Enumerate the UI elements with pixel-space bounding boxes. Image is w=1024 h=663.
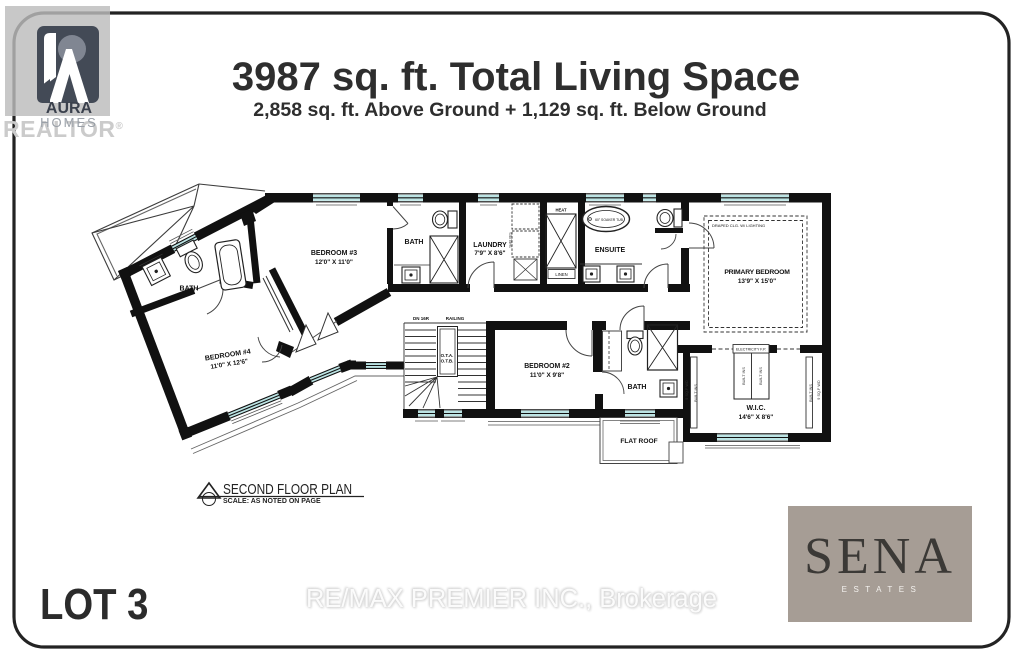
- svg-text:BEDROOM #2: BEDROOM #2: [524, 363, 570, 370]
- svg-text:14'6" X 8'6": 14'6" X 8'6": [739, 414, 774, 421]
- svg-text:FLAT ROOF: FLAT ROOF: [620, 438, 657, 445]
- svg-text:SHELVES: SHELVES: [509, 232, 513, 248]
- svg-text:O.T.B.: O.T.B.: [441, 359, 454, 364]
- svg-text:W.I.C.: W.I.C.: [746, 405, 765, 412]
- svg-text:PRIMARY BEDROOM: PRIMARY BEDROOM: [724, 269, 790, 276]
- svg-text:9 SQ.F WD: 9 SQ.F WD: [817, 380, 821, 400]
- svg-text:O.T.A.: O.T.A.: [441, 353, 454, 358]
- svg-text:RAILING: RAILING: [446, 316, 465, 321]
- svg-text:LINEN: LINEN: [555, 272, 567, 277]
- svg-text:ENSUITE: ENSUITE: [595, 247, 626, 254]
- svg-text:11'0" X 9'8": 11'0" X 9'8": [530, 372, 564, 379]
- svg-text:HEAT: HEAT: [555, 208, 567, 213]
- svg-text:BUILT INS: BUILT INS: [759, 367, 763, 385]
- svg-text:60" SOAKER TUB: 60" SOAKER TUB: [595, 218, 623, 222]
- svg-text:LAUNDRY: LAUNDRY: [473, 242, 507, 249]
- svg-text:BUILT INS: BUILT INS: [694, 384, 698, 402]
- svg-text:BUILT INS: BUILT INS: [742, 367, 746, 385]
- svg-text:ELECTRICITY F.P.: ELECTRICITY F.P.: [736, 348, 766, 352]
- svg-text:9 SQ.F WD: 9 SQ.F WD: [685, 380, 689, 400]
- svg-text:7'9" X 8'6": 7'9" X 8'6": [474, 250, 505, 257]
- svg-text:BEDROOM #3: BEDROOM #3: [311, 250, 357, 257]
- svg-text:BATH: BATH: [405, 239, 424, 246]
- svg-text:DRAPED CLG. W/ LIGHTING: DRAPED CLG. W/ LIGHTING: [712, 223, 765, 228]
- svg-text:BATH: BATH: [628, 384, 647, 391]
- svg-text:BUILT INS: BUILT INS: [809, 384, 813, 402]
- svg-text:BATH: BATH: [180, 286, 199, 293]
- svg-text:13'9" X 15'0": 13'9" X 15'0": [738, 278, 776, 285]
- svg-text:12'0" X 11'0": 12'0" X 11'0": [315, 259, 353, 266]
- svg-text:DN 16R: DN 16R: [413, 316, 430, 321]
